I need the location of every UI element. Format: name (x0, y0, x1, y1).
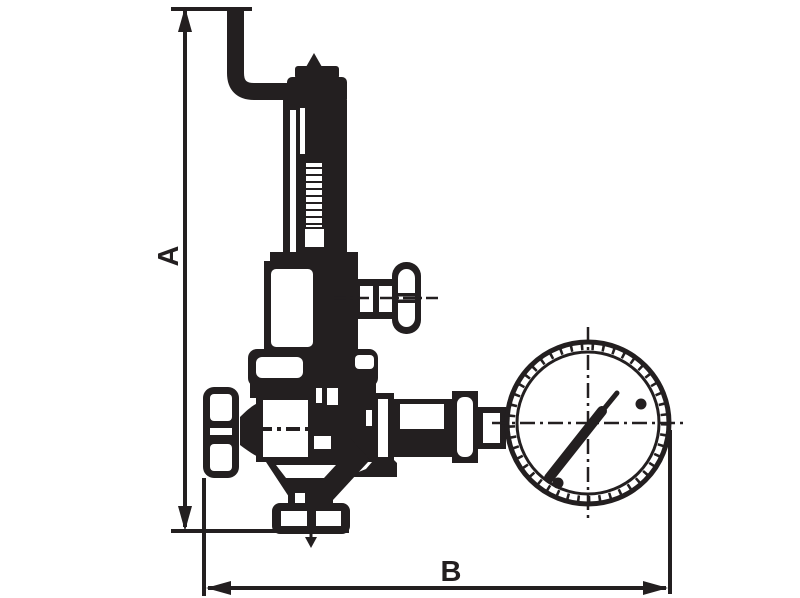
width-arrow-right-icon (643, 581, 668, 595)
adjusting-spindle-thread (305, 163, 324, 247)
spring-housing (283, 100, 347, 258)
gauge-connector-adapter (478, 407, 506, 449)
valve-technical-drawing: A B (0, 0, 800, 598)
gauge-screw-top (636, 399, 647, 410)
width-dimension-label: B (441, 556, 462, 588)
height-arrow-down-icon (178, 506, 192, 531)
gauge-screw-bottom (553, 478, 564, 489)
spring-housing-cap (287, 53, 347, 105)
union-nut (248, 349, 378, 387)
height-dimension-label: A (153, 245, 185, 266)
valve-assembly (203, 9, 512, 548)
gauge-connector-nut (452, 391, 478, 463)
width-arrow-left-icon (206, 581, 231, 595)
gauge-connector-barrel (394, 399, 452, 457)
outlet-centerline-tick (305, 534, 317, 548)
handwheel-stem (240, 401, 263, 459)
gauge-connector-flange (372, 393, 394, 463)
spring-chamber (264, 261, 358, 353)
drawing-canvas: A B (0, 0, 800, 598)
pressure-gauge (492, 327, 686, 519)
adjusting-screw-tip (306, 53, 322, 67)
handwheel (203, 387, 239, 478)
spring-housing-highlight (290, 110, 296, 252)
outlet-flange (272, 503, 350, 534)
